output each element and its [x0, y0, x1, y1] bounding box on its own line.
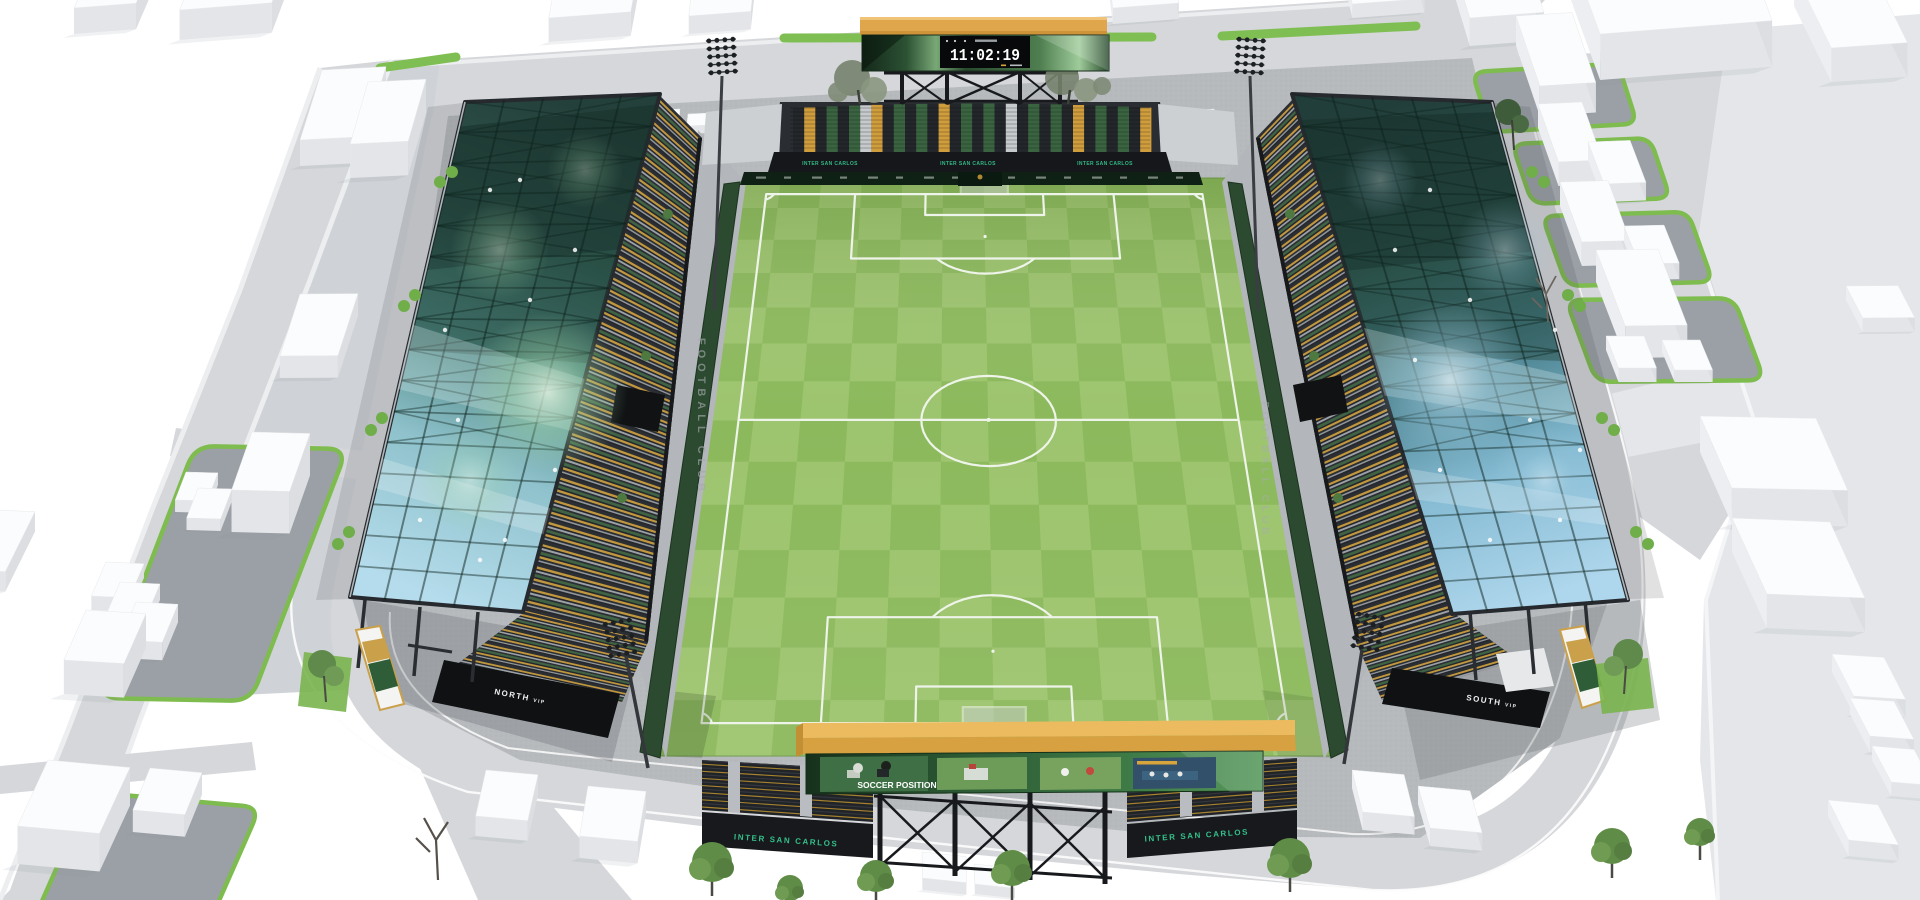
svg-text:FOOTBALL CLUB: FOOTBALL CLUB — [695, 338, 707, 496]
svg-text:INTER SAN CARLOS: INTER SAN CARLOS — [802, 161, 858, 167]
svg-text:11:02:19: 11:02:19 — [950, 47, 1020, 66]
svg-text:SOCCER POSITION: SOCCER POSITION — [857, 780, 936, 790]
svg-text:INTER SAN CARLOS: INTER SAN CARLOS — [940, 161, 996, 167]
svg-text:INTER SAN CARLOS: INTER SAN CARLOS — [1077, 161, 1133, 167]
svg-text:FOOTBALL CLUB: FOOTBALL CLUB — [1259, 402, 1270, 539]
